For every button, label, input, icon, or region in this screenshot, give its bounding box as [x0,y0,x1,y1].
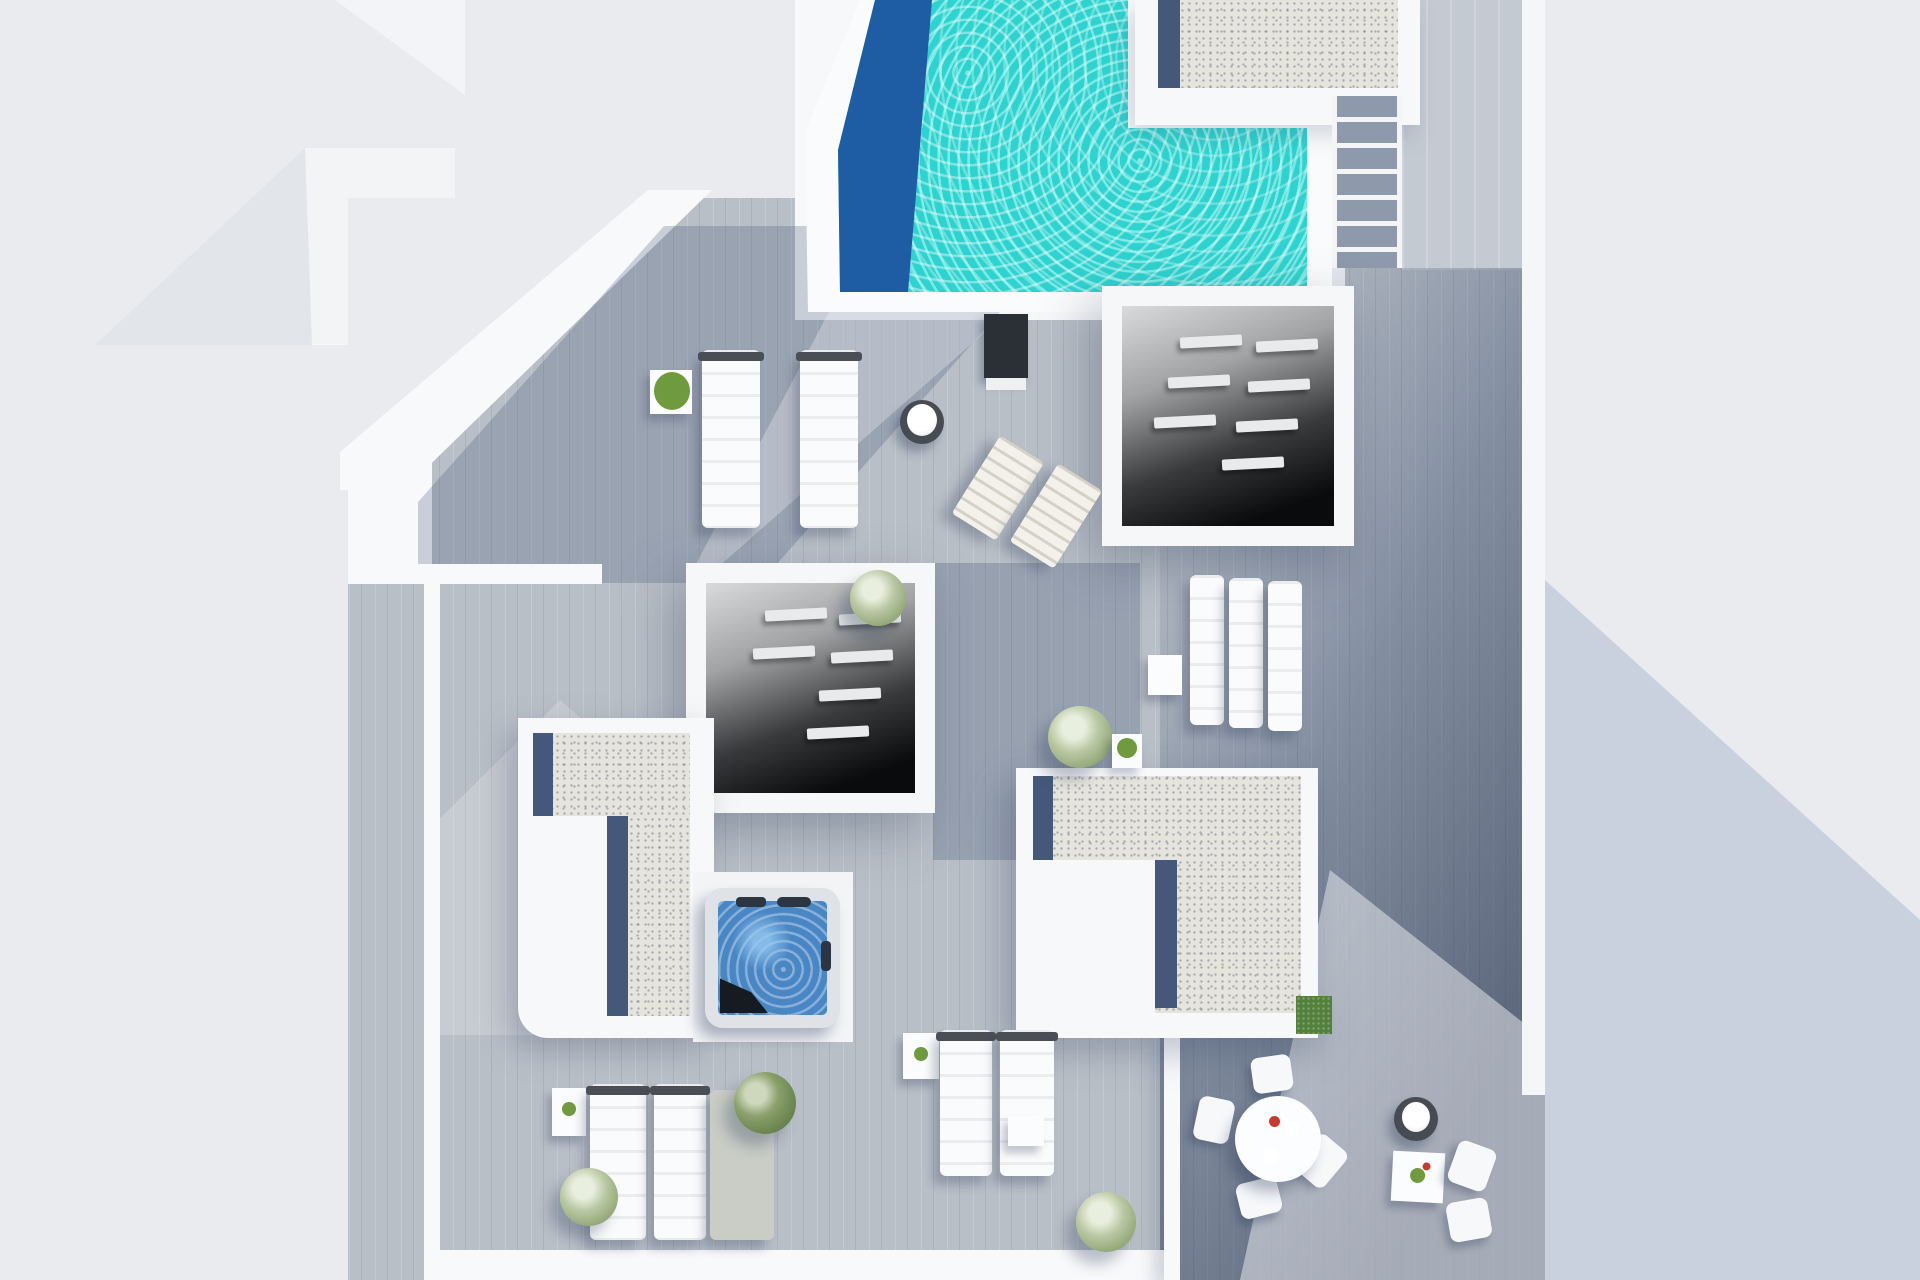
gravel-fill [1158,0,1398,88]
shrub-plant [1117,738,1137,758]
towel-pile [1402,1102,1430,1132]
sun-lounger [1229,578,1263,728]
towel-pile [907,404,937,436]
potted-plant [1076,1192,1136,1252]
bistro-chair [1445,1197,1493,1244]
parapet-rim-right [1522,0,1545,1095]
jacuzzi-cover-fold [720,967,768,1013]
jacuzzi-headrest [821,941,831,971]
potted-plant [1048,706,1112,768]
louvre-slat [1222,456,1284,470]
skylight-void-right [1102,286,1354,546]
stairs [1332,96,1402,268]
gravel-roof-big [1016,768,1318,1038]
side-table [903,1033,939,1079]
tray-table [1008,1116,1044,1146]
dining-chair [1250,1053,1295,1094]
parapet-wall-mid [418,564,602,584]
building-shadow-on-ground [1545,520,1920,1280]
void-interior [1122,306,1334,526]
red-cup [1269,1116,1280,1127]
gravel-shadow-strip [1158,0,1180,88]
gravel-shadow-strip [1033,776,1053,860]
sun-lounger [1000,1030,1054,1176]
rooftop-terrace-render: Top-down 3D architectural render of a pe… [0,0,1920,1280]
bistro-table [1391,1151,1446,1204]
jacuzzi [705,888,840,1028]
sun-lounger [940,1030,992,1176]
louvre-slat [1256,338,1318,352]
panel-base [986,378,1026,390]
louvre-slat [753,645,815,659]
louvre-slat [765,607,827,621]
parapet-wall-bottom [424,1250,1172,1280]
pool-equipment-panel [984,314,1028,378]
gravel-fill [533,733,690,816]
louvre-slat [1248,378,1310,392]
potted-plant [734,1072,796,1134]
tableware [1263,1148,1279,1164]
sun-lounger [702,350,760,528]
gravel-shadow-strip [1155,860,1177,1008]
louvre-slat [1236,418,1298,432]
mini-plant [914,1047,928,1061]
gravel-shadow-strip [533,733,553,816]
mini-plant [1410,1168,1426,1184]
towel-table [900,400,944,444]
sun-lounger [654,1084,706,1240]
louvre-slat [1168,374,1230,388]
louvre-slat [1180,334,1242,348]
gravel-shadow-strip [607,816,628,1016]
sun-lounger [800,350,858,528]
side-table [552,1088,586,1136]
louvre-slat [807,725,869,739]
gravel-roof-left [518,718,714,1038]
red-cup [1422,1162,1430,1170]
sun-lounger [1190,575,1224,725]
jacuzzi-headrest [777,897,811,907]
mini-plant [562,1102,576,1116]
grass-patch [1296,996,1332,1034]
shrub-plant [654,372,690,410]
louvre-slat [819,687,881,701]
side-table [1148,655,1182,695]
louvre-slat [1154,414,1216,428]
parapet-wall-left [424,564,440,1280]
neighbour-roof-small [325,0,465,100]
terrace-divider-wall [1164,1030,1180,1280]
sun-lounger [1268,581,1302,731]
jacuzzi-headrest [736,897,766,907]
potted-plant [560,1168,618,1226]
louvre-slat [831,649,893,663]
deck-top-right [1402,0,1522,270]
dining-table [1235,1096,1321,1182]
towel-table [1394,1097,1438,1141]
potted-plant [850,570,906,626]
tableware [1285,1122,1299,1136]
